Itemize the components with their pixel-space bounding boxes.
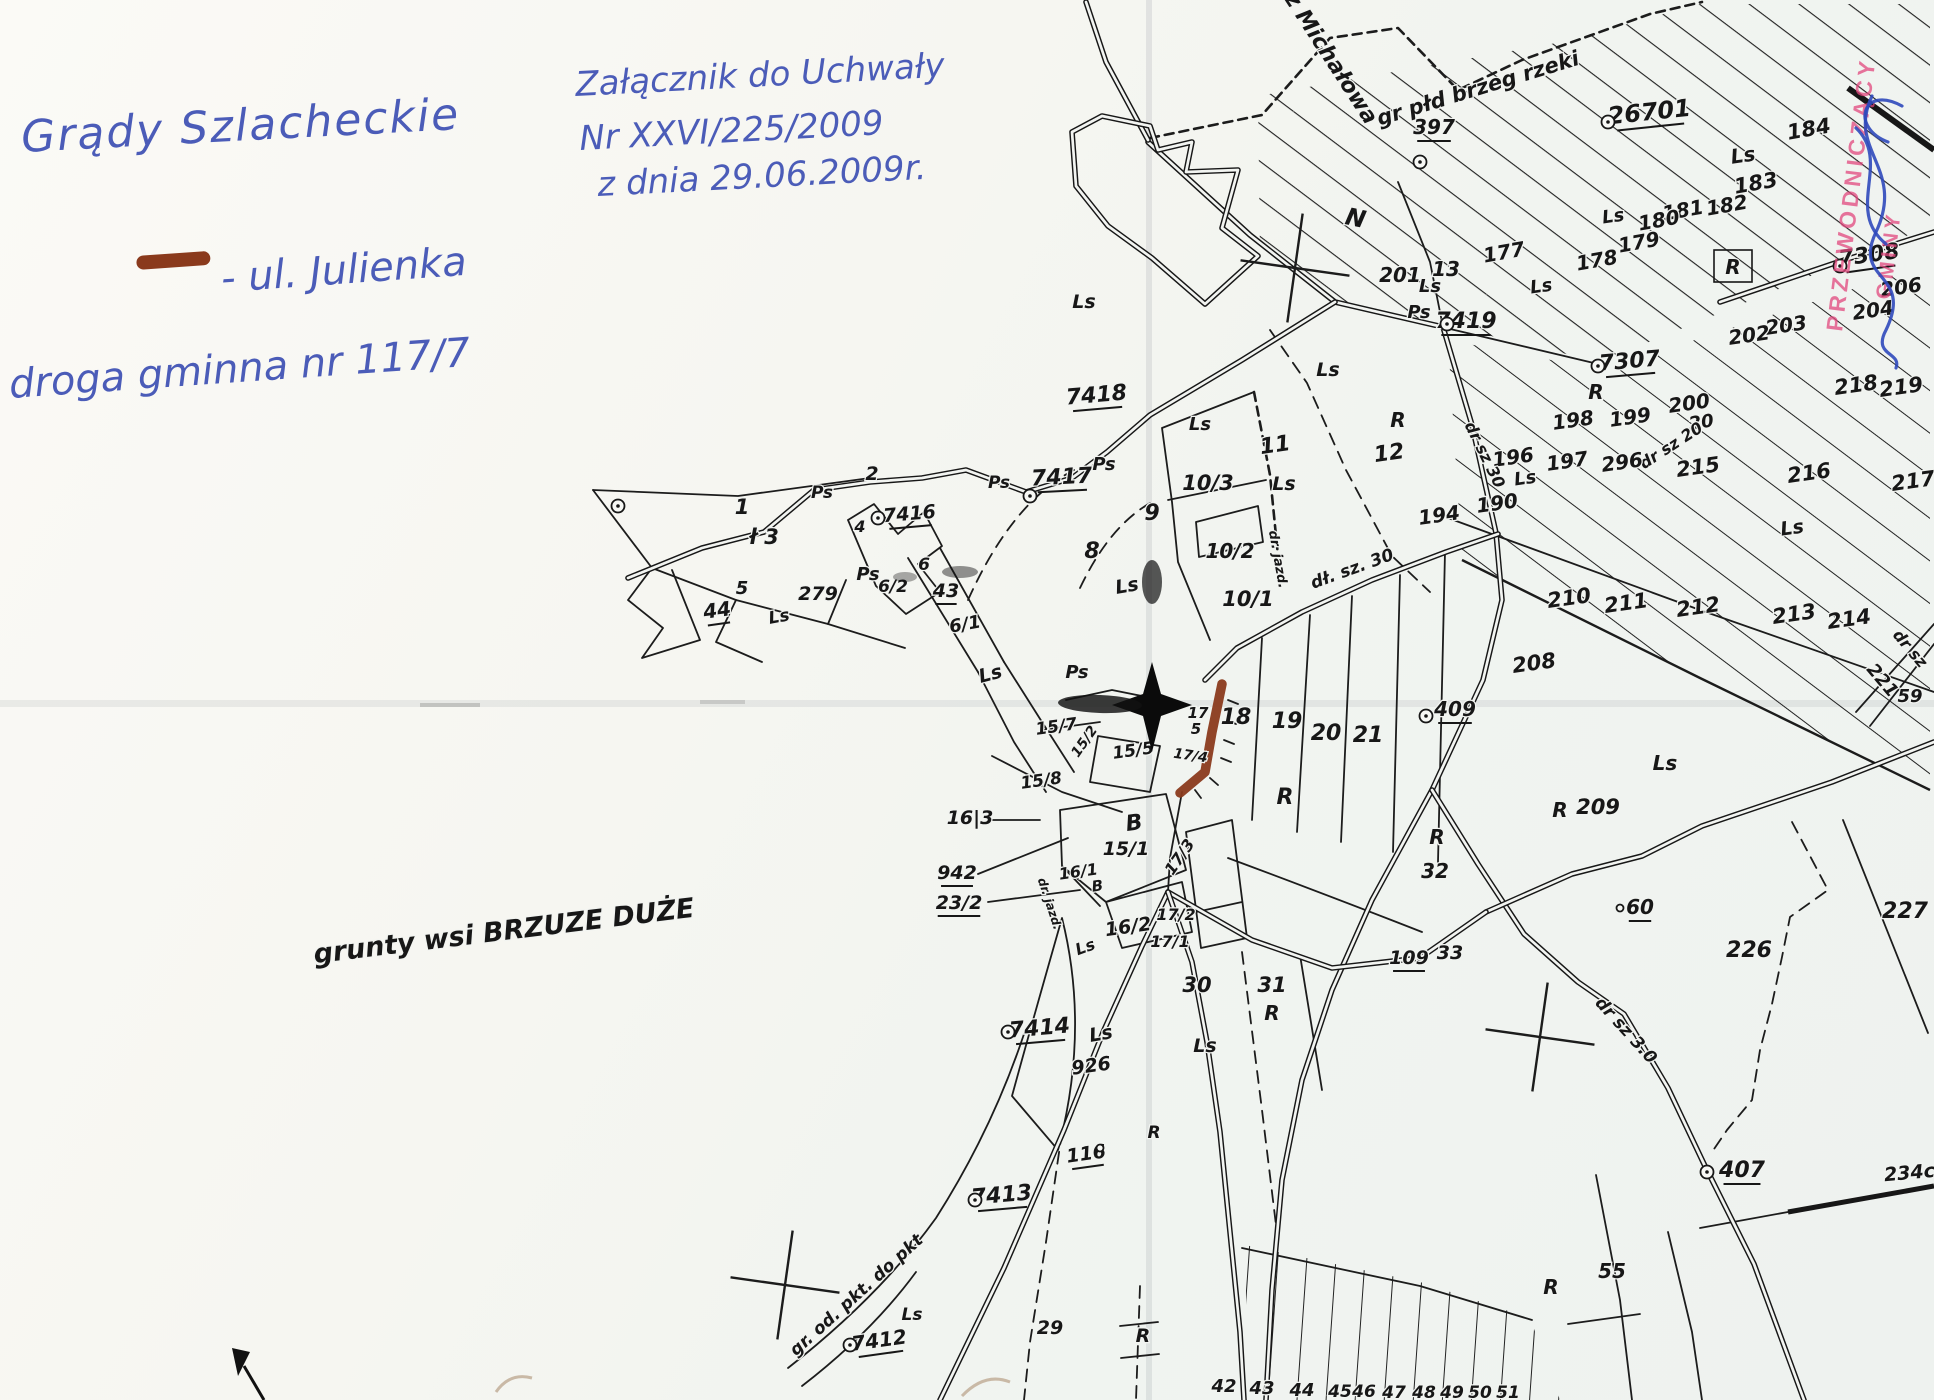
handwritten-annotations: Grądy Szlacheckie - ul. Julienka droga g… <box>7 46 946 408</box>
svg-text:33: 33 <box>1437 942 1463 964</box>
parcel-number-label: Ls <box>1316 359 1339 381</box>
svg-text:10/3: 10/3 <box>1182 471 1234 495</box>
parcel-number-label: Ls <box>1653 751 1678 775</box>
parcel-number-label: 43 <box>932 580 959 604</box>
svg-text:60: 60 <box>1626 895 1654 919</box>
scanned-cadastral-map: 12ł 34527944LsPs741666/2436/1PsLsLsPsPs7… <box>0 0 1934 1400</box>
svg-text:17/1: 17/1 <box>1150 932 1189 951</box>
parcel-number-label: ł 3 <box>748 525 779 549</box>
parcel-number-label: 942 <box>937 862 977 886</box>
svg-text:Ls: Ls <box>1316 359 1339 381</box>
parcel-number-label: R <box>1147 1123 1160 1143</box>
svg-text:50: 50 <box>1468 1383 1492 1400</box>
svg-text:R: R <box>1429 825 1444 849</box>
survey-point-marker <box>1420 710 1433 723</box>
parcel-number-label: Ls <box>1601 205 1626 229</box>
parcel-number-label: B <box>1090 876 1104 895</box>
scan-smudges <box>496 560 1192 1396</box>
parcel-number-label: 43 <box>1248 1378 1274 1399</box>
svg-text:dr. jazd.: dr. jazd. <box>1035 876 1065 932</box>
parcel-number-label: 227 <box>1882 899 1929 924</box>
legend-road-sublabel: droga gminna nr 117/7 <box>7 330 472 408</box>
parcel-number-label: 17/3 <box>1160 835 1198 878</box>
parcel-number-label: 201 <box>1379 263 1421 287</box>
survey-point-marker <box>1414 156 1427 169</box>
svg-text:21: 21 <box>1353 723 1384 748</box>
svg-text:Ls: Ls <box>1272 473 1295 495</box>
svg-text:B: B <box>1090 876 1104 895</box>
parcel-number-label: 226 <box>1726 938 1772 963</box>
parcel-number-label: 44 <box>701 596 733 626</box>
svg-text:Ls: Ls <box>1072 291 1095 313</box>
parcel-number-label: R <box>1277 785 1294 810</box>
parcel-number-label: 15/1 <box>1103 838 1150 860</box>
survey-point-marker <box>612 500 625 513</box>
parcel-number-label: Ps <box>988 473 1010 493</box>
parcel-number-label: 50 <box>1468 1383 1492 1400</box>
svg-text:109: 109 <box>1389 947 1429 969</box>
parcel-number-label: Ls <box>1419 276 1441 297</box>
svg-text:29: 29 <box>1037 1317 1063 1339</box>
attachment-note-line1: Załącznik do Uchwały <box>573 46 946 105</box>
svg-text:407: 407 <box>1718 1158 1766 1183</box>
parcel-number-label: 5 <box>1191 720 1201 738</box>
north-arrow-icon <box>232 1348 264 1400</box>
svg-text:6: 6 <box>918 555 930 575</box>
svg-text:30: 30 <box>1182 973 1211 997</box>
svg-text:43: 43 <box>1248 1378 1274 1399</box>
svg-text:Ls: Ls <box>1419 276 1441 297</box>
svg-text:Ps: Ps <box>1092 454 1116 475</box>
svg-text:226: 226 <box>1726 938 1772 963</box>
parcel-number-label: 2 <box>865 463 878 485</box>
svg-text:32: 32 <box>1421 859 1449 883</box>
svg-text:dr. jazd.: dr. jazd. <box>1265 529 1290 589</box>
survey-point-marker <box>1602 116 1615 129</box>
legend-road-label: - ul. Julienka <box>219 239 468 302</box>
svg-text:7414: 7414 <box>1008 1013 1071 1043</box>
svg-text:51: 51 <box>1496 1383 1520 1400</box>
parcel-number-label: 44 <box>1288 1380 1314 1400</box>
parcel-number-label: 6 <box>918 555 930 575</box>
survey-point-marker <box>1592 360 1605 373</box>
parcel-number-label: 8 <box>1084 539 1099 564</box>
parcel-number-label: 21 <box>1353 723 1384 748</box>
svg-text:46: 46 <box>1351 1382 1376 1400</box>
svg-text:17/2: 17/2 <box>1156 905 1195 924</box>
svg-text:Ls: Ls <box>902 1305 923 1325</box>
parcel-number-label: Ps <box>1092 454 1116 475</box>
parcel-number-label: 5 <box>736 578 749 599</box>
svg-text:R: R <box>1725 255 1740 279</box>
parcel-number-label: 194 <box>1417 500 1462 530</box>
parcel-number-label: 19 <box>1272 709 1303 734</box>
svg-text:48: 48 <box>1411 1383 1436 1400</box>
svg-text:ł 3: ł 3 <box>748 525 779 549</box>
svg-text:Ps: Ps <box>1065 662 1089 683</box>
road-label: dr sz 3.0 <box>1591 993 1661 1068</box>
svg-text:1: 1 <box>735 495 750 519</box>
svg-text:42: 42 <box>1210 1376 1236 1397</box>
svg-text:227: 227 <box>1882 899 1929 924</box>
svg-text:15/7: 15/7 <box>1034 714 1078 740</box>
svg-text:20: 20 <box>1311 721 1342 746</box>
svg-text:23/2: 23/2 <box>936 892 983 914</box>
svg-text:Ls: Ls <box>976 661 1004 688</box>
svg-text:18: 18 <box>1221 705 1252 730</box>
attachment-note-line3: z dnia 29.06.2009r. <box>595 148 927 205</box>
svg-text:grunty wsi BRZUZE DUŻE: grunty wsi BRZUZE DUŻE <box>312 892 697 971</box>
survey-point-label: 409 <box>1433 697 1476 723</box>
svg-text:R: R <box>1543 1275 1558 1299</box>
svg-text:49: 49 <box>1439 1383 1464 1400</box>
parcel-number-label: Ls <box>976 661 1004 688</box>
parcel-number-label: 279 <box>798 583 838 605</box>
parcel-number-label: Ls <box>1193 1035 1216 1057</box>
parcel-number-label: 109 <box>1389 947 1429 971</box>
parcel-number-label: 17/1 <box>1150 932 1189 951</box>
parcel-number-label: 209 <box>1576 795 1620 819</box>
parcel-number-label: Ls <box>1529 275 1554 299</box>
svg-text:409: 409 <box>1433 697 1476 721</box>
svg-text:R: R <box>1552 798 1567 822</box>
parcel-number-label: 12 <box>1372 439 1406 468</box>
parcel-number-label: Ls <box>1513 467 1538 491</box>
svg-text:44: 44 <box>1288 1380 1314 1400</box>
svg-text:Ls: Ls <box>1779 516 1805 541</box>
svg-text:19: 19 <box>1272 709 1303 734</box>
svg-text:12: 12 <box>1372 439 1406 468</box>
svg-text:9: 9 <box>1144 501 1159 526</box>
svg-text:B: B <box>1124 810 1144 837</box>
svg-text:10/2: 10/2 <box>1205 539 1254 563</box>
parcel-number-label: R <box>1725 255 1740 279</box>
svg-text:43: 43 <box>932 580 959 602</box>
parcel-number-label: 10/1 <box>1222 587 1274 611</box>
svg-text:R: R <box>1264 1001 1279 1025</box>
svg-text:Ls: Ls <box>1114 573 1141 599</box>
parcel-number-label: 49 <box>1439 1383 1464 1400</box>
small-ring-marker <box>1617 905 1624 912</box>
parcel-number-label: 10/2 <box>1205 539 1254 563</box>
parcel-number-label: 1 <box>735 495 750 519</box>
svg-text:194: 194 <box>1417 500 1462 530</box>
svg-text:209: 209 <box>1576 795 1620 819</box>
svg-text:234c: 234c <box>1883 1160 1934 1186</box>
svg-text:208: 208 <box>1511 648 1558 678</box>
survey-point-label: 7412 <box>850 1324 909 1357</box>
parcel-number-label: 31 <box>1257 973 1286 997</box>
parcel-number-label: 208 <box>1511 648 1558 678</box>
survey-point-label: 397 <box>1413 115 1455 141</box>
parcel-number-label: Ls <box>1272 473 1295 495</box>
survey-point-marker <box>969 1194 982 1207</box>
small-ring-marker <box>1097 1145 1104 1152</box>
parcel-number-label: 59 <box>1897 686 1922 707</box>
parcel-number-label: Ps <box>856 564 880 585</box>
parcel-number-label: 20 <box>1311 721 1342 746</box>
svg-text:R: R <box>1588 380 1603 404</box>
svg-text:7417: 7417 <box>1030 463 1093 491</box>
svg-text:4: 4 <box>853 517 865 536</box>
svg-text:45: 45 <box>1327 1382 1352 1400</box>
survey-point-label: 7414 <box>1008 1013 1071 1044</box>
parcel-number-label: Ls <box>1189 414 1211 435</box>
parcel-number-label: R <box>1552 798 1567 822</box>
survey-point-marker <box>1002 1026 1015 1039</box>
parcel-number-label: 4 <box>853 517 865 536</box>
svg-text:10/1: 10/1 <box>1222 587 1274 611</box>
parcel-number-label: Ps <box>811 483 833 503</box>
parcel-number-label: 9 <box>1144 501 1159 526</box>
parcel-number-label: 926 <box>1070 1052 1112 1079</box>
parcel-number-label: 16|3 <box>947 807 994 829</box>
svg-text:7418: 7418 <box>1065 380 1128 410</box>
parcel-number-label: Ps <box>1407 302 1431 323</box>
survey-point-label: 7417 <box>1030 463 1093 492</box>
svg-text:17/3: 17/3 <box>1160 835 1198 878</box>
parcel-number-label: Ls <box>1073 935 1098 960</box>
svg-text:Ps: Ps <box>856 564 880 585</box>
svg-text:R: R <box>1390 408 1405 432</box>
parcel-number-label: 29 <box>1037 1317 1063 1339</box>
svg-text:Ls: Ls <box>1601 205 1626 229</box>
parcel-number-label: R <box>1588 380 1603 404</box>
parcel-number-label: R <box>1390 408 1405 432</box>
survey-point-label: 7307 <box>1598 346 1662 377</box>
parcel-number-label: 51 <box>1496 1383 1520 1400</box>
survey-point-label: 407 <box>1718 1158 1766 1184</box>
parcel-number-label: 48 <box>1411 1383 1436 1400</box>
svg-text:6/1: 6/1 <box>948 611 983 637</box>
survey-point-marker <box>844 1339 857 1352</box>
parcel-number-label: 6/1 <box>948 611 983 637</box>
parcel-number-label: 234c <box>1883 1160 1934 1186</box>
svg-text:44: 44 <box>701 596 733 624</box>
svg-text:55: 55 <box>1598 1259 1626 1283</box>
survey-point-label: 7416 <box>882 501 937 530</box>
parcel-number-label: R <box>1136 1325 1151 1347</box>
svg-text:Ps: Ps <box>811 483 833 503</box>
svg-text:Ls: Ls <box>767 605 791 628</box>
svg-text:Ls: Ls <box>1189 414 1211 435</box>
svg-text:R: R <box>1277 785 1294 810</box>
survey-point-marker <box>872 512 885 525</box>
village-note: grunty wsi BRZUZE DUŻE <box>312 892 697 971</box>
svg-text:Ls: Ls <box>1653 751 1678 775</box>
parcel-number-label: R <box>1429 825 1444 849</box>
svg-text:201: 201 <box>1379 263 1421 287</box>
svg-text:Ls: Ls <box>1073 935 1098 960</box>
parcel-number-label: 11 <box>1258 431 1292 460</box>
svg-text:Ls: Ls <box>1513 467 1538 491</box>
parcel-number-label: 47 <box>1381 1383 1406 1400</box>
svg-text:47: 47 <box>1381 1383 1406 1400</box>
svg-text:7416: 7416 <box>882 501 937 528</box>
parcel-number-label: 10/3 <box>1182 471 1234 495</box>
parcel-number-label: 17/4 <box>1172 746 1208 767</box>
place-title: Grądy Szlacheckie <box>20 89 462 163</box>
survey-point-marker <box>1701 1166 1714 1179</box>
parcel-number-label: Ls <box>767 605 791 628</box>
parcel-number-label: 60 <box>1626 895 1654 921</box>
svg-text:Ls: Ls <box>1729 141 1757 168</box>
road-label: dr. jazd. <box>1265 529 1290 589</box>
svg-text:942: 942 <box>937 862 977 884</box>
svg-text:2: 2 <box>865 463 878 485</box>
svg-text:Ps: Ps <box>988 473 1010 493</box>
svg-text:8: 8 <box>1084 539 1099 564</box>
parcel-number-label: 18 <box>1221 705 1252 730</box>
svg-text:dr sz 3.0: dr sz 3.0 <box>1591 993 1661 1068</box>
grid-cross-marker <box>1478 975 1602 1099</box>
parcel-number-label: 30 <box>1182 973 1211 997</box>
svg-text:926: 926 <box>1070 1052 1112 1079</box>
parcel-number-label: 33 <box>1437 942 1463 964</box>
parcel-number-label: Ps <box>1065 662 1089 683</box>
svg-text:17/4: 17/4 <box>1172 746 1208 767</box>
parcel-number-label: 32 <box>1421 859 1449 883</box>
svg-text:5: 5 <box>736 578 749 599</box>
attachment-note-line2: Nr XXVI/225/2009 <box>578 103 884 159</box>
parcel-number-label: 42 <box>1210 1376 1236 1397</box>
svg-text:59: 59 <box>1897 686 1922 707</box>
parcel-number-label: R <box>1264 1001 1279 1025</box>
svg-text:Ls: Ls <box>1088 1021 1115 1047</box>
svg-text:Ls: Ls <box>1193 1035 1216 1057</box>
svg-text:16|3: 16|3 <box>947 807 994 829</box>
svg-text:11: 11 <box>1258 431 1292 460</box>
svg-text:397: 397 <box>1413 115 1455 139</box>
svg-text:Ls: Ls <box>1529 275 1554 299</box>
parcel-number-label: Ls <box>902 1305 923 1325</box>
legend-road-swatch <box>136 251 211 270</box>
parcel-number-label: 55 <box>1598 1259 1626 1283</box>
parcel-number-label: R <box>1543 1275 1558 1299</box>
svg-text:15/1: 15/1 <box>1103 838 1150 860</box>
survey-point-marker <box>1024 490 1037 503</box>
parcel-number-label: 23/2 <box>936 892 983 916</box>
parcel-number-label: 46 <box>1351 1382 1376 1400</box>
parcel-number-label: Ls <box>1088 1021 1115 1047</box>
parcel-number-label: B <box>1124 810 1144 837</box>
svg-text:R: R <box>1147 1123 1160 1143</box>
parcel-number-label: Ls <box>1729 141 1757 168</box>
svg-text:279: 279 <box>798 583 838 605</box>
parcel-number-label: Ls <box>1114 573 1141 599</box>
parcel-number-label: 17/2 <box>1156 905 1195 924</box>
parcel-number-label: Ls <box>1072 291 1095 313</box>
parcel-number-label: Ls <box>1779 516 1805 541</box>
survey-point-label: 7418 <box>1065 380 1128 411</box>
survey-point-marker <box>1441 318 1454 331</box>
road-label: dr. jazd. <box>1035 876 1065 932</box>
svg-text:31: 31 <box>1257 973 1286 997</box>
parcel-number-label: 15/7 <box>1034 714 1078 740</box>
parcel-number-label: 45 <box>1327 1382 1352 1400</box>
svg-text:R: R <box>1136 1325 1151 1347</box>
svg-text:5: 5 <box>1191 720 1201 738</box>
svg-text:Ps: Ps <box>1407 302 1431 323</box>
